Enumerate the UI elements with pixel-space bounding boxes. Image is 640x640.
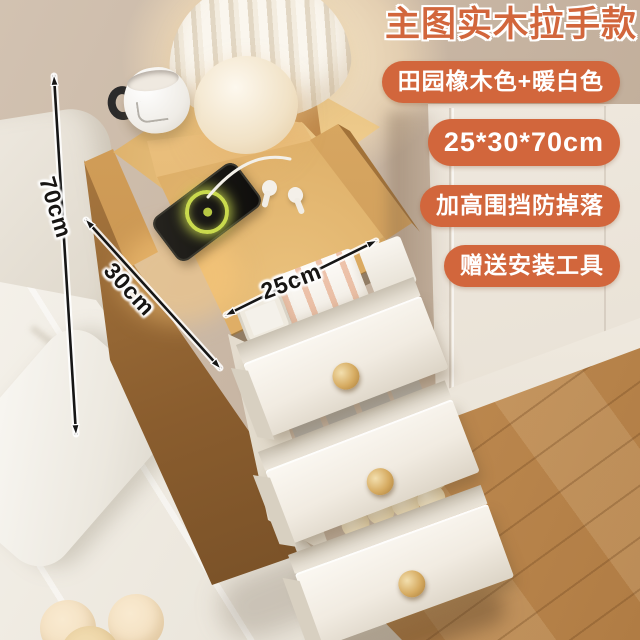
product-title: 主图实木拉手款 [385, 0, 637, 47]
badge-color-option: 田园橡木色+暖白色 [382, 61, 620, 103]
charging-cable [208, 157, 290, 197]
badge-free-tools: 赠送安装工具 [444, 245, 620, 287]
badge-raised-guard: 加高围挡防掉落 [420, 185, 620, 227]
badge-size: 25*30*70cm [428, 119, 620, 166]
height-arrow [54, 76, 76, 434]
product-photo-nightstand: 70cm 30cm 25cm 主图实木拉手款 田园橡木色+暖白色 25*30*7… [0, 0, 640, 640]
